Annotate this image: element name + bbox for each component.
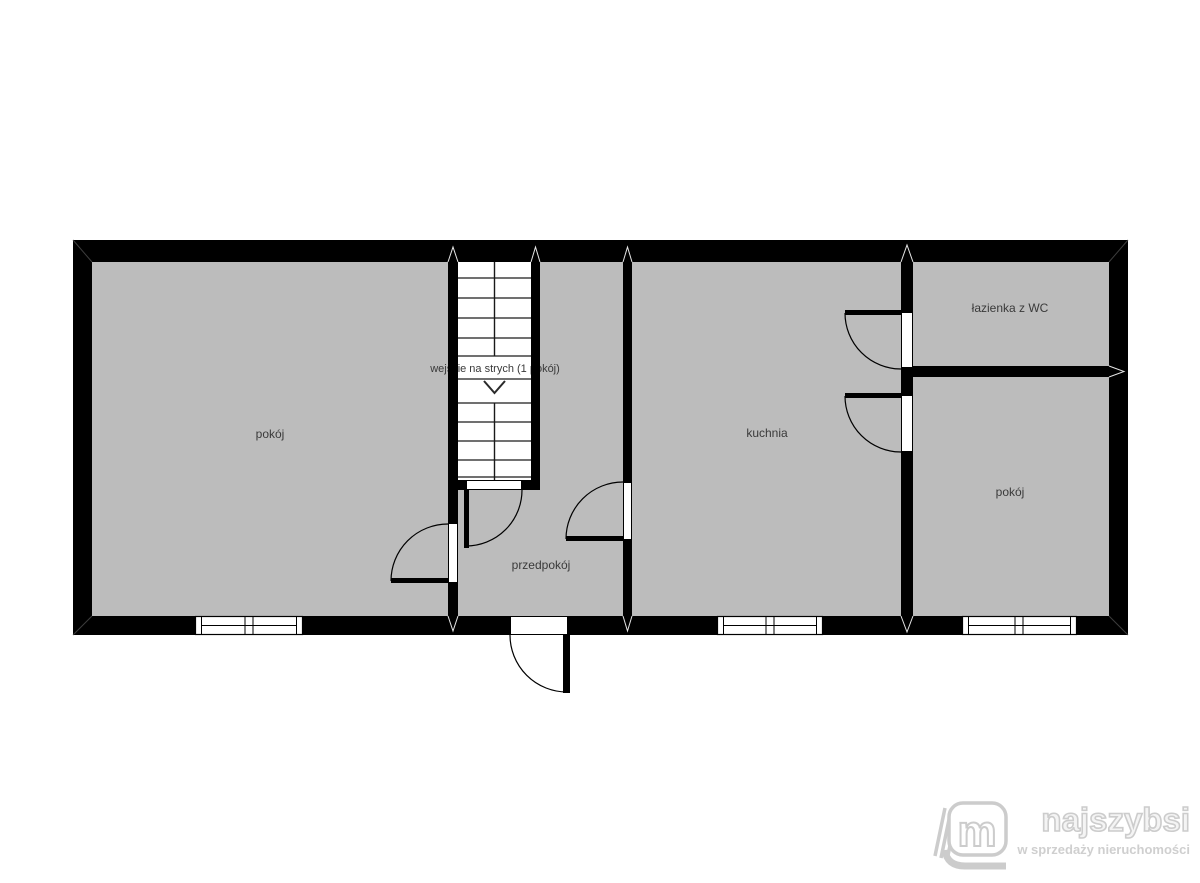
door-leaf-pokoj-left: [391, 578, 448, 583]
window-kuchnia: [718, 617, 823, 635]
logo-name: najszybsi: [1041, 800, 1190, 840]
door-leaf-entrance: [563, 635, 570, 693]
opening-pokoj-right-door: [902, 396, 913, 452]
room-label-pokoj-right: pokój: [996, 485, 1025, 499]
opening-kuchnia-door: [624, 483, 632, 540]
opening-lazienka-door: [902, 313, 913, 368]
wall-lazienka-pokoj: [913, 366, 1109, 377]
outer-wall-top: [73, 240, 1128, 262]
opening-pokoj-left-door: [449, 524, 458, 583]
door-leaf-stairs: [464, 490, 469, 548]
window-pokoj-right: [963, 617, 1077, 635]
floor-area: [92, 262, 1109, 616]
room-label-przedpokoj: przedpokój: [512, 558, 571, 572]
logo-tagline: w sprzedaży nieruchomości: [1017, 842, 1190, 857]
outer-wall-left: [73, 240, 92, 635]
floorplan-drawing: wejście na strych (1 pokój): [0, 0, 1200, 878]
logo-text-block: najszybsi w sprzedaży nieruchomości: [1017, 800, 1190, 857]
logo-m-letter: m: [958, 807, 997, 856]
opening-stairs-door: [467, 481, 522, 490]
floorplan-canvas: wejście na strych (1 pokój): [0, 0, 1200, 878]
outer-wall-right: [1109, 240, 1128, 635]
room-label-lazienka: łazienka z WC: [972, 301, 1049, 315]
door-arc-entrance: [510, 635, 567, 692]
wall-kuchnia-left: [623, 262, 632, 616]
door-leaf-kuchnia: [566, 536, 623, 541]
room-label-kuchnia: kuchnia: [746, 426, 788, 440]
najszybsi-logo: m najszybsi w sprzedaży nieruchomości: [927, 800, 1190, 870]
opening-entrance-door: [511, 617, 568, 635]
door-leaf-pokoj-right: [845, 393, 901, 398]
door-leaf-lazienka: [845, 310, 901, 315]
logo-m-icon: m: [927, 800, 1011, 870]
wall-stairs-right: [531, 262, 540, 490]
window-pokoj-left: [196, 617, 303, 635]
room-label-pokoj-left: pokój: [256, 427, 285, 441]
